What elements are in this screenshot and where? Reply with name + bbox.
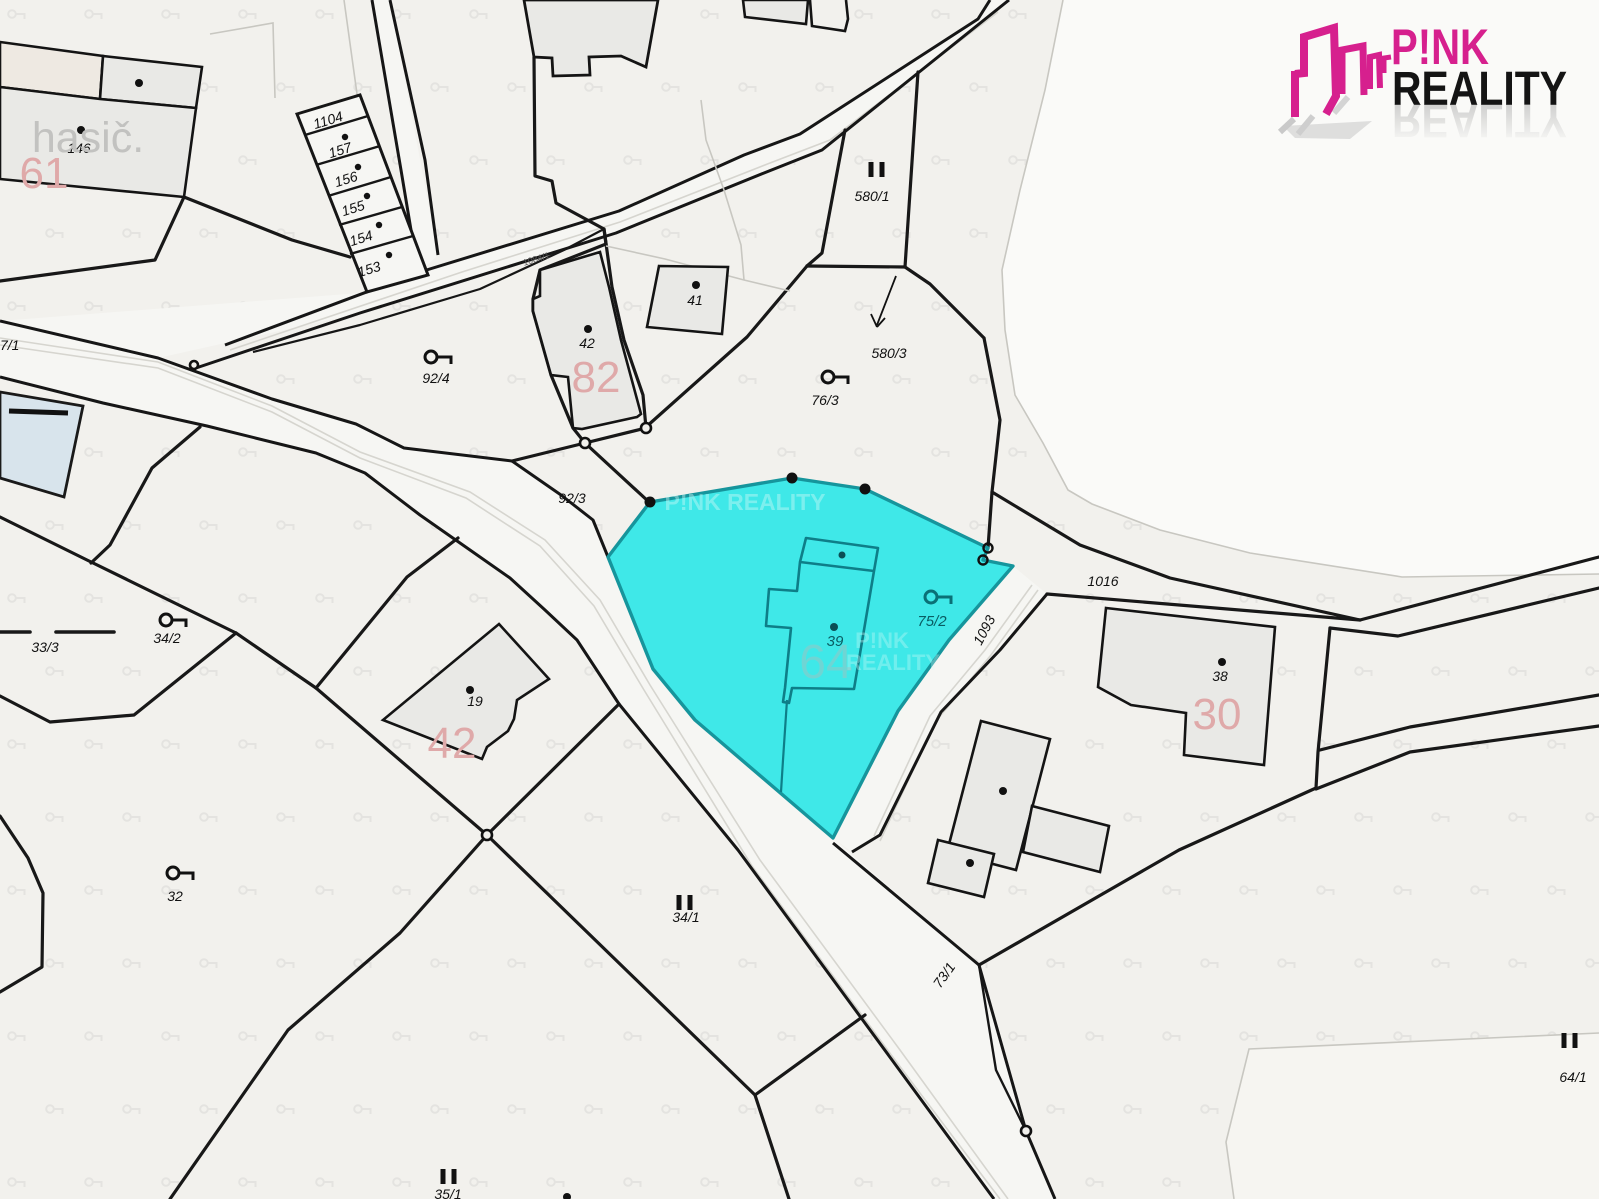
svg-text:REALITY: REALITY [846, 650, 940, 675]
svg-text:580/3: 580/3 [871, 345, 906, 361]
svg-text:34/1: 34/1 [672, 909, 699, 925]
svg-text:30: 30 [1193, 690, 1242, 739]
svg-text:75/2: 75/2 [917, 613, 947, 630]
svg-text:64/1: 64/1 [1559, 1069, 1586, 1085]
svg-text:34/2: 34/2 [153, 630, 180, 646]
svg-text:64: 64 [799, 636, 852, 689]
svg-text:42: 42 [579, 335, 595, 351]
svg-text:41: 41 [687, 292, 703, 308]
svg-text:76/3: 76/3 [811, 392, 838, 408]
svg-text:92/3: 92/3 [558, 490, 585, 506]
svg-text:35/1: 35/1 [434, 1186, 461, 1199]
svg-text:32: 32 [167, 888, 183, 904]
svg-text:1016: 1016 [1087, 573, 1118, 589]
svg-text:42: 42 [428, 719, 477, 768]
svg-text:33/3: 33/3 [31, 639, 58, 655]
svg-text:92/4: 92/4 [422, 370, 449, 386]
svg-text:82: 82 [572, 353, 621, 402]
svg-text:19: 19 [467, 693, 483, 709]
svg-text:7/1: 7/1 [0, 337, 19, 353]
svg-text:61: 61 [20, 149, 69, 198]
svg-text:P!NK REALITY: P!NK REALITY [665, 489, 826, 515]
svg-text:38: 38 [1212, 668, 1228, 684]
svg-text:580/1: 580/1 [854, 188, 889, 204]
